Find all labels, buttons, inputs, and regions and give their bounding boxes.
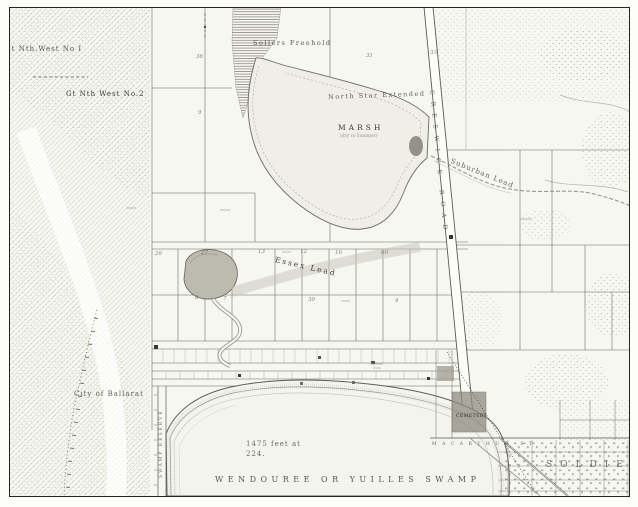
map-canvas: reat Nth.West No I Gt Nth West No.2 Soll… xyxy=(9,7,630,497)
label-swamp-reserve: SWAMP RESERVE xyxy=(160,409,165,478)
lot-number: 8 xyxy=(195,296,199,302)
lot-number: 60 xyxy=(381,251,388,257)
cemetery-block xyxy=(452,392,486,432)
lot-number: 33 xyxy=(430,51,437,57)
creek-meander xyxy=(213,299,240,366)
label-soldiers-hill: SOLDIERS xyxy=(546,461,630,470)
lot-number: 9 xyxy=(198,111,202,117)
lot-number: 13 xyxy=(258,250,265,256)
lot-number: 30 xyxy=(308,298,315,304)
label-macarthur-street: MACARTHUR ST xyxy=(432,443,537,448)
label-great-nth-west-1: reat Nth.West No I xyxy=(9,46,82,53)
lot-number: 7 xyxy=(223,297,227,303)
label-sollers-freehold: Sollers Freehold xyxy=(253,40,332,47)
map-artwork xyxy=(9,7,630,497)
lot-number: 4 xyxy=(395,299,399,305)
label-elevation-2: 224. xyxy=(246,451,266,458)
lot-number: 12 xyxy=(300,250,307,256)
label-city-of-ballarat: City of Ballarat xyxy=(74,391,144,398)
terrain-west-texture xyxy=(9,7,150,496)
lot-number: 31 xyxy=(366,54,373,60)
lot-number: 27 xyxy=(201,251,208,257)
marsh-outline xyxy=(248,58,429,229)
label-cemetery: CEMETERY xyxy=(456,415,487,420)
label-marsh-note: (dry in Summer) xyxy=(340,135,378,140)
label-gt-nth-west-2: Gt Nth West No.2 xyxy=(66,91,145,98)
map-frame: reat Nth.West No I Gt Nth West No.2 Soll… xyxy=(9,7,630,497)
label-marsh: MARSH xyxy=(338,124,383,132)
label-elevation-1: 1475 feet at xyxy=(246,441,301,448)
pond xyxy=(184,249,237,299)
lot-number: 16 xyxy=(335,251,342,257)
label-wendouree-swamp: WENDOUREE OR YUILLES SWAMP xyxy=(215,476,480,484)
scanned-map-page: { "page": { "type": "scanned historical … xyxy=(0,0,638,507)
lot-number: 26 xyxy=(155,252,162,258)
lot-number: 36 xyxy=(196,55,203,61)
